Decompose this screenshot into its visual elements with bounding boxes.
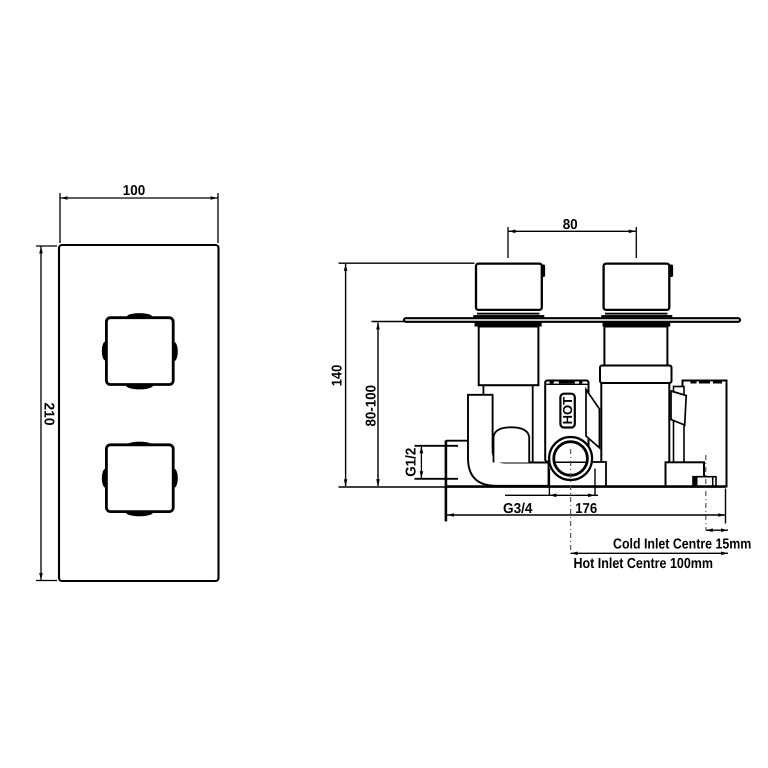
svg-text:Cold Inlet Centre 15mm: Cold Inlet Centre 15mm bbox=[613, 537, 751, 553]
svg-text:Hot Inlet Centre 100mm: Hot Inlet Centre 100mm bbox=[574, 556, 714, 572]
svg-text:80-100: 80-100 bbox=[363, 385, 379, 427]
svg-text:140: 140 bbox=[330, 365, 346, 387]
svg-text:100: 100 bbox=[123, 183, 145, 199]
svg-text:210: 210 bbox=[41, 403, 57, 426]
svg-text:G1/2: G1/2 bbox=[404, 448, 420, 477]
svg-text:176: 176 bbox=[575, 501, 597, 517]
svg-text:HOT: HOT bbox=[560, 397, 575, 425]
svg-text:80: 80 bbox=[563, 217, 578, 233]
